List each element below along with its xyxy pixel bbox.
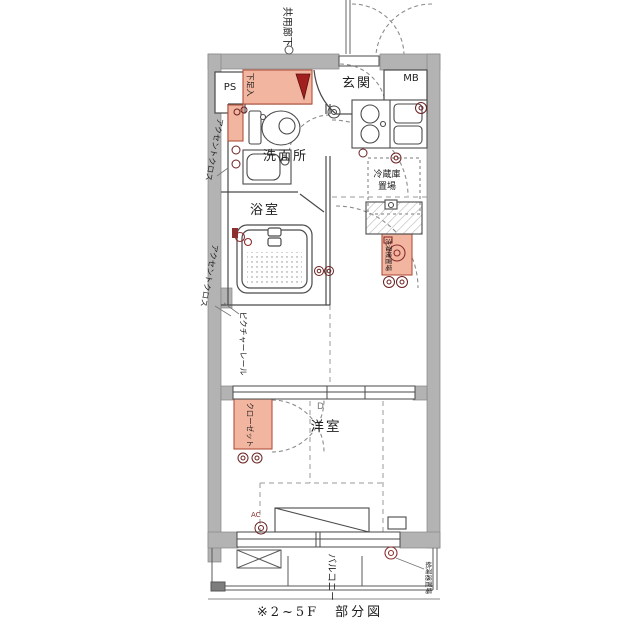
washer-place-label: 洗濯機置場 <box>384 237 391 273</box>
entrance-label: 玄関 <box>334 77 380 92</box>
closet-label: クローゼット <box>245 402 254 446</box>
shoe-box-label: 下足入 <box>245 70 254 100</box>
floorplan-linework <box>0 0 640 640</box>
meter-box-label: MB <box>398 73 424 85</box>
water-heater-symbol <box>385 547 424 569</box>
picture-rail-label: ピクチャーレール <box>238 304 247 384</box>
plan-caption: ※2~5F 部分図 <box>230 606 410 621</box>
washroom-label: 洗面所 <box>263 150 308 165</box>
toilet <box>249 111 300 145</box>
bathroom-label: 浴室 <box>250 204 280 219</box>
kitchen-counter <box>366 200 422 234</box>
ac-label: AC <box>251 511 261 519</box>
refrigerator-label-line1: 冷蔵庫 <box>362 170 412 180</box>
floorplan-page: 共用廊下 PS 下足入 玄関 MB アクセントクロス アクセントクロス 洗面所 … <box>0 0 640 640</box>
sliding-partition <box>233 386 415 399</box>
bathtub <box>237 225 312 293</box>
downlight-mark: D <box>317 402 324 412</box>
entrance-door-leaf <box>339 56 379 66</box>
pipe-space-label: PS <box>216 82 244 94</box>
western-room-label: 洋室 <box>300 420 352 436</box>
common-corridor-label: 共用廊下 <box>280 6 292 48</box>
balcony-label: バルコニー <box>325 553 336 599</box>
bedroom-counter <box>275 508 406 532</box>
refrigerator-label-line2: 置場 <box>362 182 412 192</box>
water-heater-label: 給湯器置場 <box>424 561 431 595</box>
corridor-partition <box>285 0 350 54</box>
